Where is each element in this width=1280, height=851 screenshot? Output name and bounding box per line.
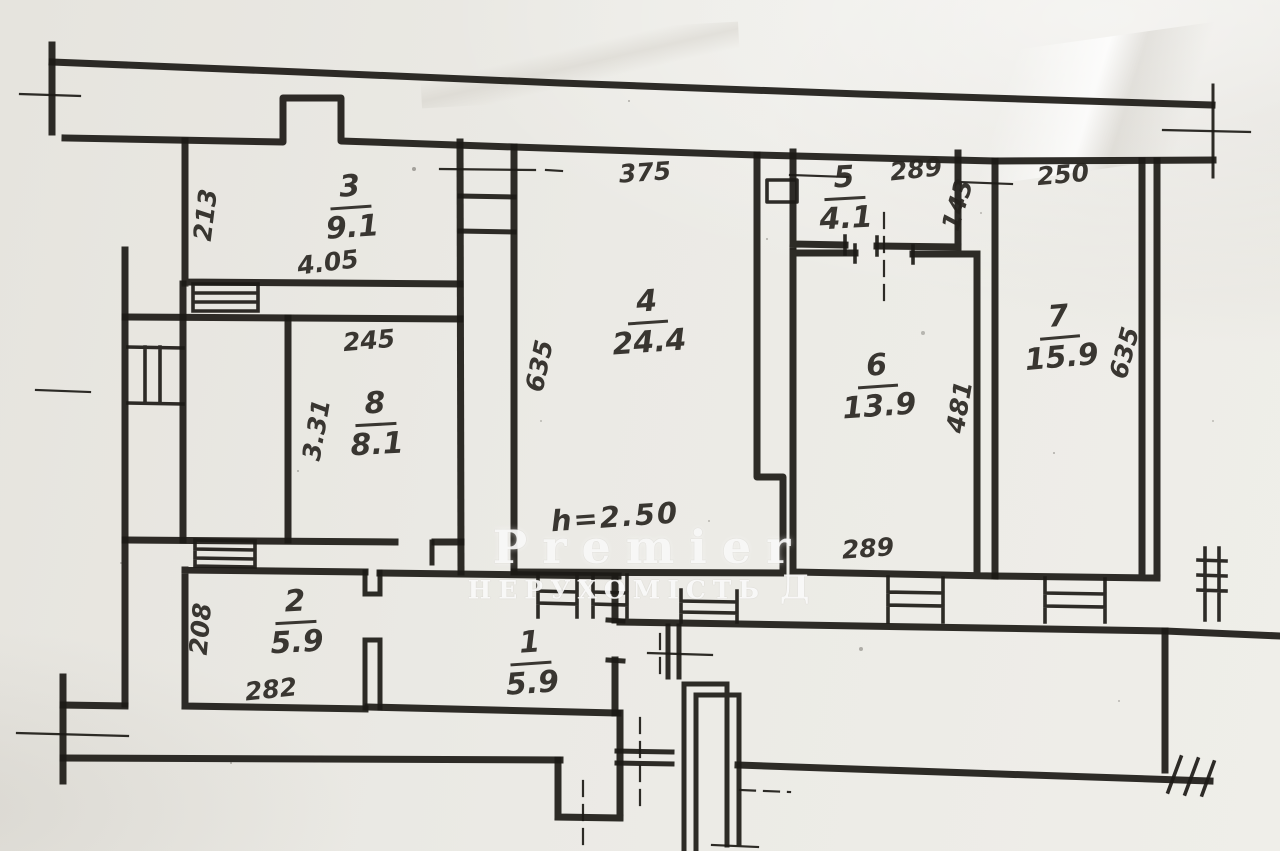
room-area: 5.9 <box>270 622 325 659</box>
watermark-tagline: НЕРУХОМІСТЬ Д <box>468 568 817 607</box>
dimension-label: 213 <box>190 188 222 243</box>
room-2-label: 2 5.9 <box>268 585 325 660</box>
scanned-floor-plan: 3 9.1 8 8.1 4 24.4 5 4.1 6 13.9 7 15.9 2… <box>0 0 1280 851</box>
room-6-label: 6 13.9 <box>839 348 918 425</box>
room-7-label: 7 15.9 <box>1020 298 1100 376</box>
window-and-vent-blocks <box>128 180 1226 795</box>
room-number: 4 <box>625 285 668 325</box>
room-3-label: 3 9.1 <box>322 169 380 245</box>
hatch-marks <box>1168 757 1214 795</box>
room-area: 9.1 <box>325 207 380 245</box>
dimension-label: 289 <box>889 154 944 186</box>
vent-block <box>1045 578 1105 622</box>
room-number: 7 <box>1037 299 1081 340</box>
room-1-label: 1 5.9 <box>502 625 560 701</box>
dimension-label: 375 <box>618 158 672 188</box>
room-number: 5 <box>823 161 866 201</box>
room-5-label: 5 4.1 <box>817 161 874 236</box>
stair-band-upper <box>193 284 258 311</box>
dimension-label: 245 <box>342 326 396 357</box>
dimension-label: 282 <box>244 674 299 706</box>
wall-section-ladder <box>1198 548 1226 620</box>
dimension-label: 208 <box>186 602 217 656</box>
room-area: 4.1 <box>819 198 874 235</box>
room-number: 1 <box>508 626 551 666</box>
room-number: 8 <box>354 387 397 427</box>
room-area: 15.9 <box>1023 335 1100 376</box>
room-number: 6 <box>855 349 898 389</box>
watermark-tagline-text: НЕРУХОМІСТЬ <box>468 576 766 605</box>
dimension-label: 250 <box>1036 160 1090 191</box>
watermark-brand: Premier <box>493 520 806 574</box>
room-area: 24.4 <box>611 321 687 361</box>
room-4-label: 4 24.4 <box>609 284 688 361</box>
room-number: 3 <box>328 170 371 210</box>
room-area: 5.9 <box>505 663 560 701</box>
vent-block <box>888 577 943 622</box>
room-8-label: 8 8.1 <box>348 387 405 462</box>
left-wall-window <box>128 347 183 404</box>
interior-walls <box>125 141 1157 818</box>
dimension-label: 289 <box>841 534 895 564</box>
room-number: 2 <box>274 585 317 625</box>
room-area: 13.9 <box>841 385 917 425</box>
floorplan-drawing <box>0 0 1280 851</box>
watermark-logo-glyph: Д <box>780 568 816 607</box>
room-area: 8.1 <box>350 424 405 461</box>
